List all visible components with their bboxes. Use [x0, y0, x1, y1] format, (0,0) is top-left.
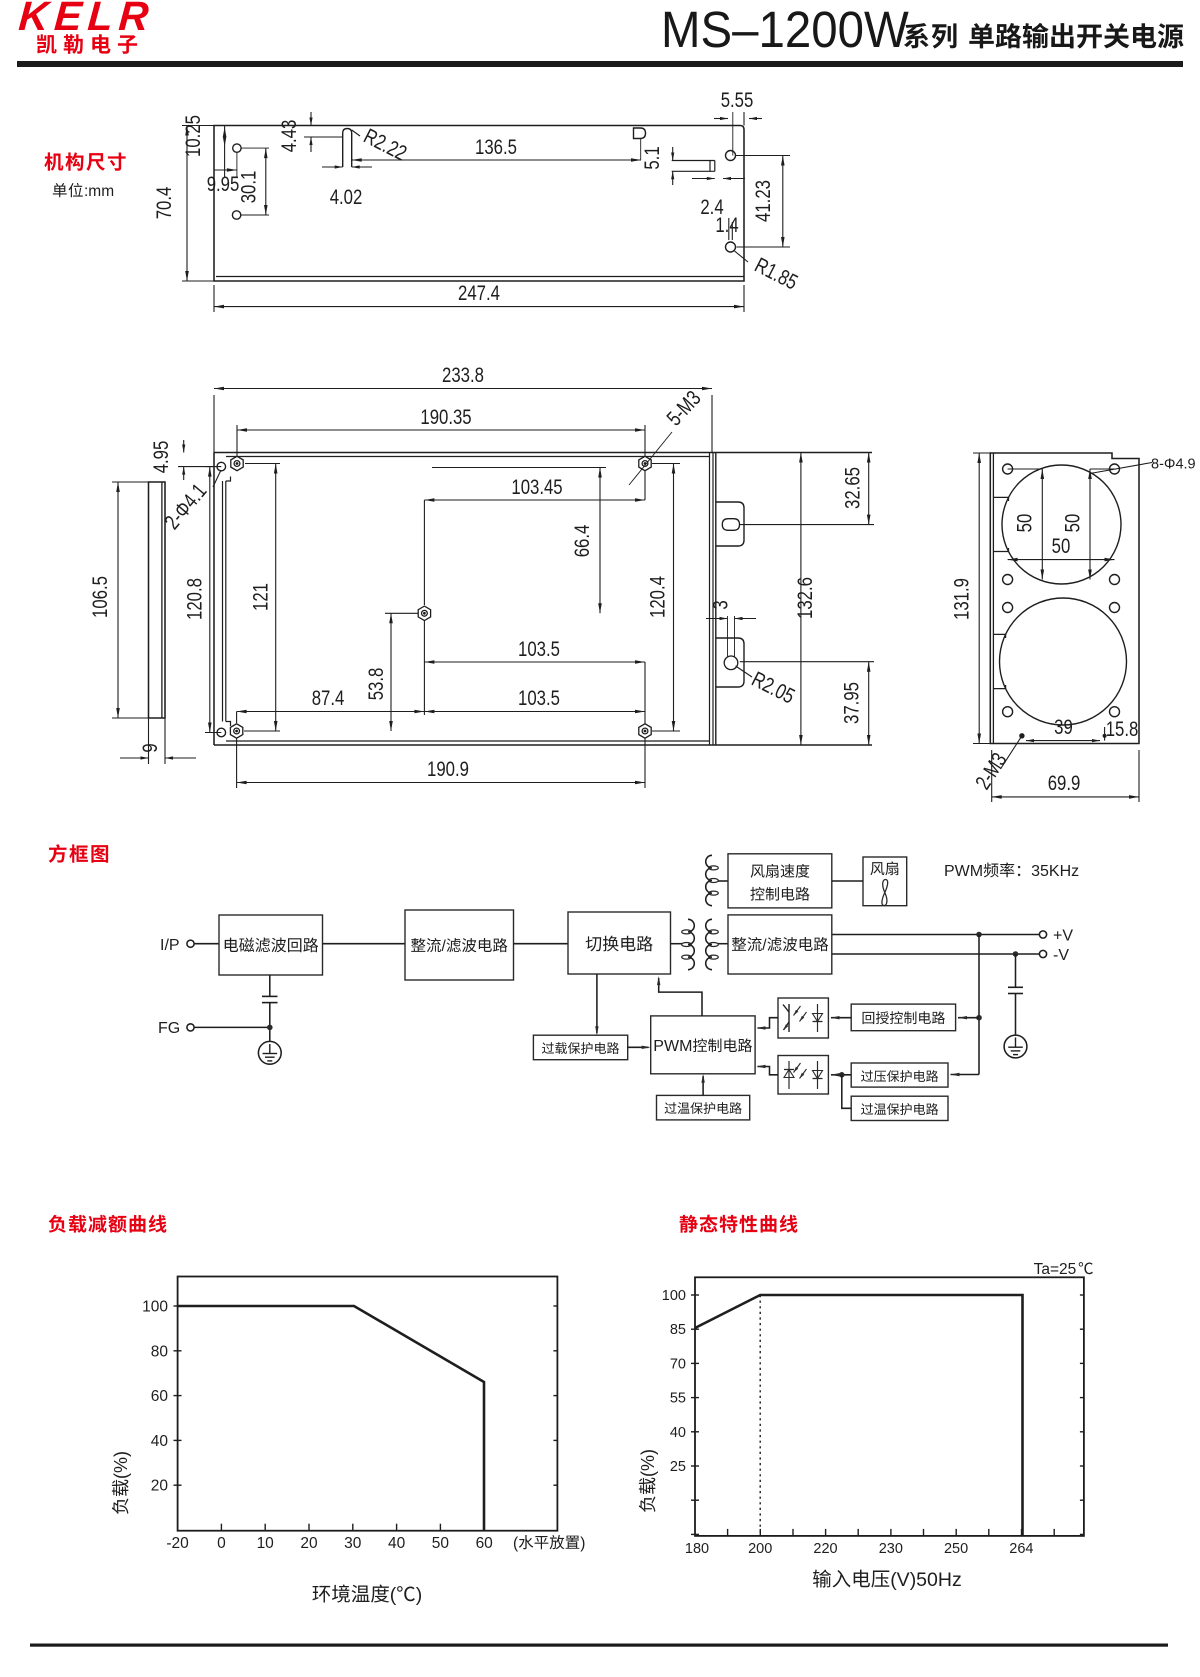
svg-text:53.8: 53.8: [365, 668, 388, 701]
svg-text:66.4: 66.4: [571, 524, 594, 557]
svg-text:8-Φ4.9: 8-Φ4.9: [1151, 457, 1196, 473]
svg-text:230: 230: [879, 1541, 903, 1557]
svg-text:264: 264: [1009, 1541, 1033, 1557]
svg-text:250: 250: [944, 1541, 968, 1557]
svg-text:(%): (%): [111, 1451, 131, 1479]
svg-text:50: 50: [1062, 514, 1085, 533]
svg-text:103.5: 103.5: [518, 687, 560, 710]
svg-text:(: (: [390, 1584, 397, 1606]
svg-text:32.65: 32.65: [842, 467, 865, 509]
svg-text:69.9: 69.9: [1048, 772, 1081, 795]
svg-text:60: 60: [151, 1388, 169, 1405]
svg-text:-20: -20: [166, 1535, 189, 1552]
svg-text:Ta=25: Ta=25: [1034, 1261, 1077, 1278]
svg-text:106.5: 106.5: [89, 576, 112, 618]
svg-text:103.5: 103.5: [518, 638, 560, 661]
svg-text:103.45: 103.45: [511, 476, 562, 499]
svg-text:40: 40: [151, 1433, 169, 1450]
svg-text:50: 50: [1014, 514, 1037, 533]
svg-text:(: (: [513, 1535, 519, 1552]
svg-text:180: 180: [685, 1541, 709, 1557]
svg-text:70.4: 70.4: [153, 186, 176, 219]
svg-text:87.4: 87.4: [312, 687, 345, 710]
svg-text:131.9: 131.9: [951, 578, 974, 620]
svg-text:PWM: PWM: [653, 1038, 692, 1055]
svg-text:121: 121: [249, 583, 272, 611]
svg-text:+V: +V: [1053, 928, 1073, 945]
svg-text:MS–1200W: MS–1200W: [661, 1, 909, 58]
svg-text::mm: :mm: [84, 183, 114, 200]
svg-text:40: 40: [388, 1535, 406, 1552]
svg-text:5.55: 5.55: [721, 89, 754, 112]
svg-text:9: 9: [139, 743, 162, 752]
svg-text:190.9: 190.9: [427, 758, 469, 781]
svg-text:30.1: 30.1: [238, 171, 261, 204]
svg-text:-V: -V: [1053, 947, 1069, 964]
svg-text:15.8: 15.8: [1106, 718, 1139, 741]
svg-text:(V)50Hz: (V)50Hz: [890, 1569, 962, 1591]
svg-text:/: /: [762, 937, 767, 954]
svg-text:(%): (%): [638, 1449, 658, 1477]
svg-text:I/P: I/P: [160, 937, 180, 954]
svg-text:60: 60: [476, 1535, 494, 1552]
svg-text:10: 10: [257, 1535, 275, 1552]
svg-text:3: 3: [709, 600, 732, 609]
svg-text:0: 0: [217, 1535, 226, 1552]
svg-text:80: 80: [151, 1343, 169, 1360]
svg-text:41.23: 41.23: [752, 180, 775, 222]
svg-text:220: 220: [813, 1541, 837, 1557]
svg-text:25: 25: [670, 1459, 686, 1475]
svg-text:9.95: 9.95: [207, 173, 240, 196]
svg-text:70: 70: [670, 1356, 686, 1372]
svg-text:39: 39: [1054, 716, 1073, 739]
svg-text:50: 50: [432, 1535, 450, 1552]
svg-text:40: 40: [670, 1425, 686, 1441]
svg-text:247.4: 247.4: [458, 282, 500, 305]
svg-text:): ): [580, 1535, 585, 1552]
svg-text:20: 20: [151, 1478, 169, 1495]
svg-text:100: 100: [142, 1299, 168, 1316]
svg-text:37.95: 37.95: [841, 682, 864, 724]
svg-text:4.02: 4.02: [330, 186, 363, 209]
svg-text:50: 50: [1052, 535, 1071, 558]
svg-text:4.95: 4.95: [150, 441, 173, 474]
svg-text:85: 85: [670, 1322, 686, 1338]
svg-text:190.35: 190.35: [420, 406, 471, 429]
svg-text:KELR: KELR: [17, 0, 156, 39]
svg-text:10.25: 10.25: [182, 115, 205, 157]
svg-text:35KHz: 35KHz: [1031, 863, 1079, 880]
svg-text:PWM: PWM: [944, 863, 983, 880]
svg-text:233.8: 233.8: [442, 364, 484, 387]
svg-text:30: 30: [344, 1535, 362, 1552]
svg-text:100: 100: [662, 1288, 686, 1304]
svg-text:20: 20: [300, 1535, 318, 1552]
svg-text:4.43: 4.43: [278, 120, 301, 153]
svg-text:FG: FG: [158, 1020, 180, 1037]
svg-text:55: 55: [670, 1391, 686, 1407]
svg-text:/: /: [442, 938, 447, 955]
svg-text:132.6: 132.6: [794, 577, 817, 619]
svg-text:200: 200: [748, 1541, 772, 1557]
svg-text:120.4: 120.4: [647, 576, 670, 618]
svg-text:120.8: 120.8: [184, 578, 207, 620]
svg-text:136.5: 136.5: [475, 136, 517, 159]
svg-text:): ): [416, 1584, 423, 1606]
svg-text:5.1: 5.1: [641, 146, 664, 169]
svg-text:1.4: 1.4: [715, 214, 739, 237]
